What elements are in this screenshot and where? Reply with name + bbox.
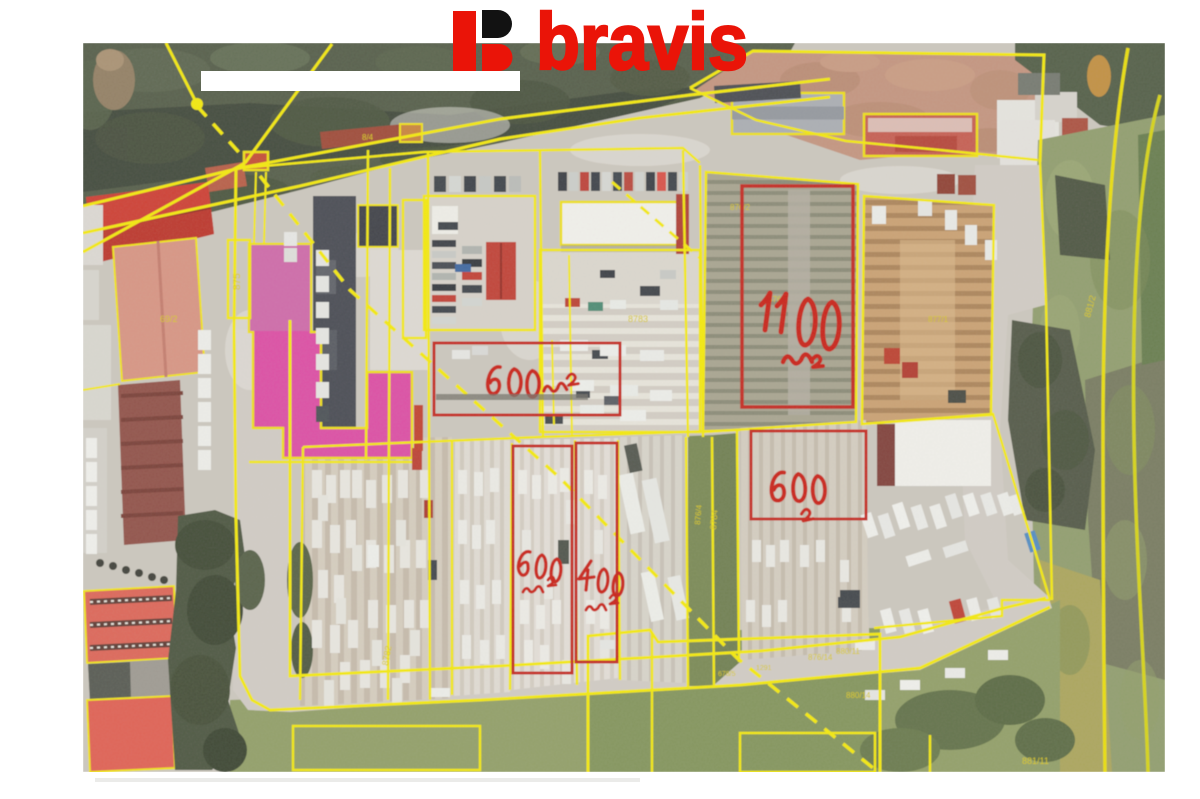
svg-text:bravis: bravis (536, 0, 748, 86)
